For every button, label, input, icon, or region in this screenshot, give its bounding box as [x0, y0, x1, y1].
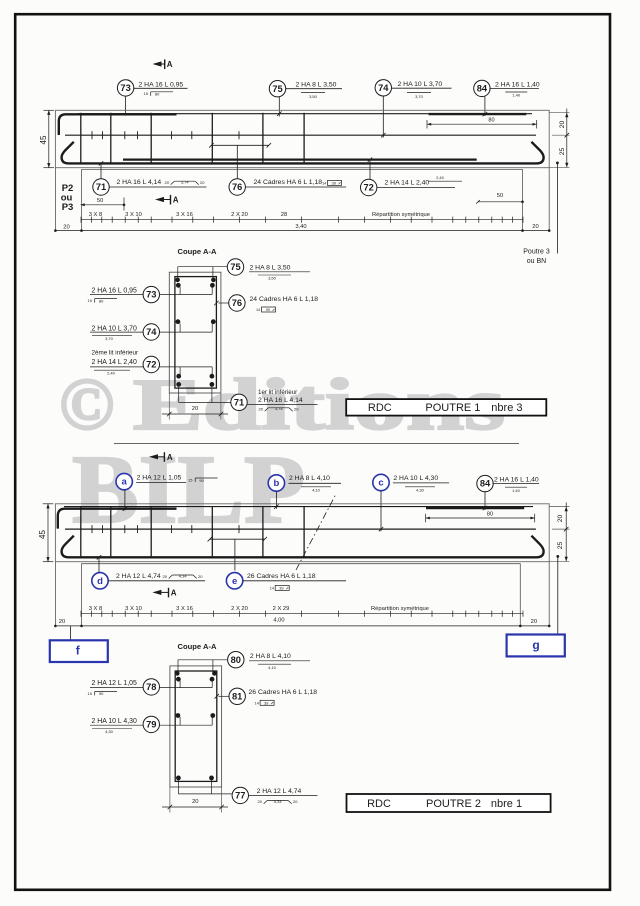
svg-text:20: 20 [294, 407, 299, 412]
svg-text:3,70: 3,70 [415, 94, 424, 99]
svg-text:POUTRE 1: POUTRE 1 [425, 402, 480, 414]
svg-text:26 Cadres HA 6 L 1,18: 26 Cadres HA 6 L 1,18 [249, 689, 318, 696]
svg-text:73: 73 [146, 290, 156, 300]
svg-text:2 HA 10 L 4,30: 2 HA 10 L 4,30 [393, 475, 438, 482]
svg-text:2 HA 14 L 2,40: 2 HA 14 L 2,40 [92, 359, 138, 366]
svg-text:20: 20 [163, 574, 168, 579]
svg-text:45: 45 [38, 530, 47, 539]
svg-text:P3: P3 [62, 202, 74, 213]
svg-text:15: 15 [88, 298, 93, 303]
svg-text:79: 79 [146, 720, 156, 730]
svg-text:3,74: 3,74 [181, 180, 190, 185]
svg-text:2 HA 10 L 4,30: 2 HA 10 L 4,30 [92, 718, 138, 725]
svg-text:e: e [232, 576, 237, 587]
svg-text:g: g [532, 638, 539, 652]
svg-text:80: 80 [487, 511, 493, 517]
svg-text:28: 28 [281, 212, 287, 218]
svg-text:3 X 16: 3 X 16 [176, 606, 193, 612]
svg-text:3 X 10: 3 X 10 [125, 212, 142, 218]
svg-text:15: 15 [88, 691, 93, 696]
svg-text:c: c [378, 478, 383, 489]
svg-text:45: 45 [39, 135, 48, 144]
svg-text:Coupe A-A: Coupe A-A [178, 247, 217, 256]
svg-text:50: 50 [97, 198, 103, 204]
svg-text:4,10: 4,10 [312, 487, 321, 492]
svg-text:71: 71 [234, 397, 244, 407]
svg-text:©: © [59, 364, 114, 446]
svg-text:25: 25 [559, 148, 566, 156]
svg-text:80: 80 [99, 298, 104, 303]
svg-text:14: 14 [322, 182, 326, 186]
svg-text:39: 39 [264, 702, 268, 706]
svg-text:2 HA 8 L 4,10: 2 HA 8 L 4,10 [250, 653, 291, 660]
svg-text:20: 20 [63, 225, 69, 231]
svg-text:72: 72 [364, 183, 374, 193]
svg-text:20: 20 [200, 180, 205, 185]
svg-text:26 Cadres HA 6 L 1,18: 26 Cadres HA 6 L 1,18 [247, 573, 316, 580]
svg-text:2,40: 2,40 [436, 175, 445, 180]
svg-text:20: 20 [192, 406, 198, 412]
svg-text:80: 80 [488, 118, 494, 124]
svg-text:20: 20 [259, 407, 264, 412]
svg-text:b: b [273, 478, 279, 489]
svg-text:75: 75 [272, 84, 282, 94]
svg-text:90: 90 [99, 691, 104, 696]
svg-text:Répartition symétrique: Répartition symétrique [371, 606, 429, 612]
svg-text:50: 50 [497, 193, 503, 199]
svg-text:81: 81 [232, 691, 242, 701]
svg-text:RDC: RDC [368, 402, 392, 414]
svg-text:a: a [122, 477, 128, 488]
svg-text:A: A [167, 453, 173, 462]
svg-text:2 HA 12 L 4,74: 2 HA 12 L 4,74 [257, 788, 302, 795]
svg-text:74: 74 [378, 83, 389, 93]
svg-text:3,40: 3,40 [295, 224, 306, 230]
svg-text:2 X 20: 2 X 20 [231, 212, 248, 218]
svg-text:1er lit inférieur: 1er lit inférieur [258, 389, 297, 396]
svg-text:d: d [97, 576, 103, 587]
svg-text:2 HA 10 L 3,70: 2 HA 10 L 3,70 [398, 81, 443, 88]
svg-text:2 HA 16 L 4,14: 2 HA 16 L 4,14 [117, 179, 162, 186]
svg-text:24 Cadres HA 6 L 1,18: 24 Cadres HA 6 L 1,18 [254, 179, 323, 186]
svg-text:nbre 1: nbre 1 [491, 798, 522, 810]
svg-text:POUTRE 2: POUTRE 2 [426, 798, 481, 810]
svg-text:3,70: 3,70 [105, 336, 114, 341]
svg-text:15: 15 [144, 91, 149, 96]
svg-text:1,40: 1,40 [512, 488, 521, 493]
svg-text:20: 20 [165, 180, 170, 185]
svg-text:4,34: 4,34 [274, 799, 283, 804]
svg-text:4,10: 4,10 [268, 665, 277, 670]
svg-text:BILP: BILP [72, 436, 305, 543]
svg-text:2 HA 16 L 1,40: 2 HA 16 L 1,40 [495, 82, 540, 89]
svg-text:24 Cadres HA 6 L 1,18: 24 Cadres HA 6 L 1,18 [250, 296, 319, 303]
svg-text:2 HA 16 L 1,40: 2 HA 16 L 1,40 [494, 476, 539, 483]
svg-text:3 X 8: 3 X 8 [89, 606, 103, 612]
svg-text:14: 14 [270, 587, 274, 591]
svg-text:39: 39 [266, 308, 270, 312]
svg-text:4,30: 4,30 [105, 729, 114, 734]
svg-text:78: 78 [146, 682, 156, 692]
svg-text:3 X 8: 3 X 8 [89, 212, 103, 218]
svg-text:20: 20 [198, 574, 203, 579]
svg-text:20: 20 [559, 121, 566, 129]
svg-text:4,00: 4,00 [273, 618, 284, 624]
svg-text:14: 14 [255, 702, 259, 706]
svg-text:2 HA 8 L 4,10: 2 HA 8 L 4,10 [289, 475, 330, 482]
svg-text:75: 75 [230, 262, 240, 272]
svg-text:2 HA 16 L 0,95: 2 HA 16 L 0,95 [139, 82, 184, 89]
svg-text:2 HA 8 L 3,50: 2 HA 8 L 3,50 [250, 265, 291, 272]
svg-text:nbre 3: nbre 3 [491, 402, 522, 414]
svg-text:2 HA 14 L 2,40: 2 HA 14 L 2,40 [385, 180, 430, 187]
svg-text:76: 76 [232, 298, 242, 308]
svg-text:RDC: RDC [367, 798, 391, 810]
svg-text:Poutre 3: Poutre 3 [523, 249, 550, 256]
svg-text:A: A [167, 60, 173, 69]
svg-text:Coupe A-A: Coupe A-A [178, 642, 217, 651]
svg-text:20: 20 [192, 799, 198, 805]
svg-text:2 X 20: 2 X 20 [231, 606, 248, 612]
svg-text:73: 73 [120, 83, 130, 93]
svg-text:3,50: 3,50 [268, 276, 277, 281]
svg-text:2 HA 12 L 4,74: 2 HA 12 L 4,74 [116, 573, 161, 580]
svg-text:4,30: 4,30 [416, 487, 425, 492]
svg-text:14: 14 [256, 308, 260, 312]
svg-text:80: 80 [155, 92, 160, 97]
svg-text:15: 15 [188, 477, 193, 482]
svg-text:20: 20 [59, 619, 65, 625]
svg-text:3,74: 3,74 [275, 406, 284, 411]
svg-text:77: 77 [235, 791, 245, 801]
svg-text:2 HA 10 L 3,70: 2 HA 10 L 3,70 [92, 326, 138, 333]
svg-text:39: 39 [332, 182, 336, 186]
svg-text:39: 39 [279, 587, 283, 591]
svg-text:A: A [173, 196, 179, 205]
svg-text:74: 74 [146, 327, 157, 337]
svg-text:Répartition symétrique: Répartition symétrique [372, 212, 430, 218]
svg-text:A: A [171, 589, 177, 598]
svg-text:ou BN: ou BN [527, 258, 546, 265]
svg-text:80: 80 [231, 655, 241, 665]
svg-text:2,40: 2,40 [107, 370, 116, 375]
svg-text:3 X 16: 3 X 16 [176, 212, 193, 218]
svg-text:3,50: 3,50 [309, 94, 318, 99]
svg-text:76: 76 [232, 182, 242, 192]
svg-text:2 HA 12 L 1,05: 2 HA 12 L 1,05 [92, 680, 138, 687]
svg-text:20: 20 [557, 515, 564, 523]
svg-text:2 HA 12 L 1,05: 2 HA 12 L 1,05 [137, 475, 182, 482]
svg-text:20: 20 [293, 799, 298, 804]
svg-text:20: 20 [532, 224, 538, 230]
svg-text:1,40: 1,40 [512, 93, 521, 98]
svg-text:84: 84 [480, 479, 491, 489]
svg-text:25: 25 [557, 542, 564, 550]
svg-text:2ème lit inférieur: 2ème lit inférieur [92, 349, 139, 356]
svg-text:3 X 10: 3 X 10 [125, 606, 142, 612]
svg-text:84: 84 [477, 84, 488, 94]
svg-text:4,34: 4,34 [179, 573, 188, 578]
svg-text:2 HA 8 L 3,50: 2 HA 8 L 3,50 [296, 82, 337, 89]
svg-text:20: 20 [531, 619, 537, 625]
svg-text:2 X 29: 2 X 29 [273, 606, 290, 612]
svg-text:72: 72 [146, 360, 156, 370]
svg-text:71: 71 [96, 182, 106, 192]
svg-text:20: 20 [258, 799, 263, 804]
svg-text:90: 90 [199, 478, 204, 483]
svg-text:2 HA 16 L 0,95: 2 HA 16 L 0,95 [92, 288, 138, 295]
svg-text:2 HA 16 L 4,14: 2 HA 16 L 4,14 [258, 397, 303, 404]
